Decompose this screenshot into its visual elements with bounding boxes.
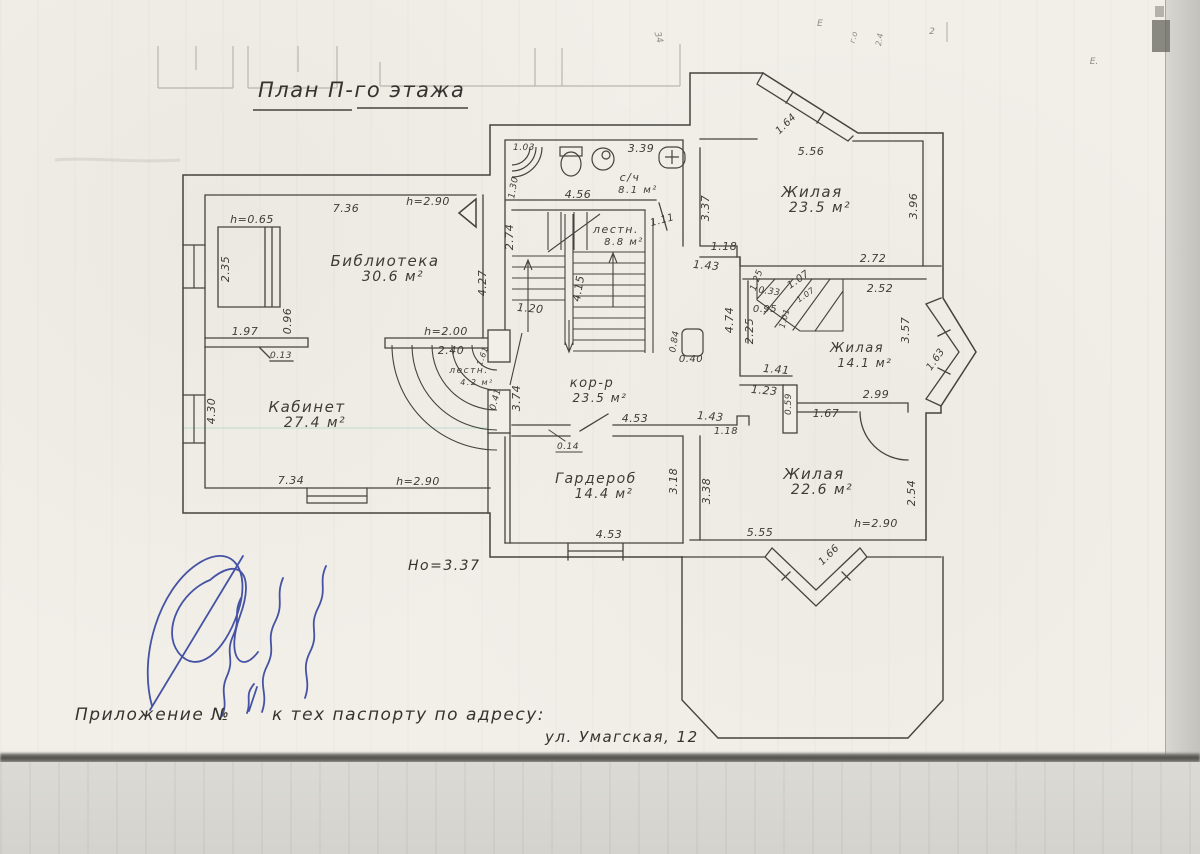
signature-ink (148, 556, 326, 716)
dim-label: 7.36 (333, 202, 360, 215)
dim-label: 5.55 (747, 526, 774, 539)
dim-label: h=2.90 (406, 195, 450, 208)
dim-label: 1.23 (751, 383, 779, 398)
dim-label: h=0.65 (230, 213, 274, 226)
dim-label: h=2.90 (854, 517, 898, 530)
bleed-text-layer: 34Ег.о2.42Е. (652, 19, 1099, 67)
caption-address: ул. Умагская, 12 (544, 728, 699, 746)
dim-label: 3.74 (510, 385, 523, 412)
dim-label: 3.37 (699, 195, 712, 222)
bleed-text: г.о (848, 30, 860, 44)
bay-window-top (757, 73, 923, 266)
dim-label: 1.03 (513, 143, 535, 153)
dim-label: 0.40 (679, 354, 703, 365)
pillar-upper (488, 330, 510, 362)
dim-label: 0.13 (270, 351, 292, 361)
dim-label: 4.27 (476, 270, 489, 297)
dim-label: 2.52 (867, 282, 894, 295)
room-area-label: 23.5 м² (573, 391, 628, 405)
dim-label: 2.54 (905, 480, 918, 507)
page-title: План П-го этажа (258, 78, 465, 102)
bottom-wall-bands (505, 540, 941, 606)
room-label: Жилая (829, 341, 884, 356)
dim-label: 0.33 (758, 286, 781, 299)
room-area-label: 8.8 м² (604, 237, 644, 248)
dim-label: 3.18 (667, 468, 680, 495)
dim-label: 1.18 (714, 426, 738, 437)
sink-icon (592, 148, 614, 170)
dim-label: 4.53 (622, 412, 649, 425)
door-triangle (459, 199, 476, 227)
dim-label: h=2.90 (396, 475, 440, 488)
dim-label: 1.20 (517, 301, 545, 316)
terrace-outline (682, 557, 943, 738)
scan-bleed-marks (55, 22, 947, 161)
dim-label: 4.30 (205, 398, 218, 425)
dim-label: 2.74 (503, 224, 516, 251)
dim-label: 3.57 (899, 317, 912, 344)
dim-label: 1.66 (817, 543, 842, 568)
dim-label: 0.95 (753, 304, 777, 315)
dim-label: 3.96 (907, 193, 920, 220)
drawing-title-block: План П-го этажа (253, 78, 468, 110)
scan-smudges (183, 6, 1170, 428)
dim-label: 2.99 (863, 388, 890, 401)
stair-left-flight (512, 256, 565, 300)
height-note: Но=3.37 (408, 558, 481, 574)
bleed-text: 34 (652, 31, 665, 45)
room-area-label: 30.6 м² (362, 269, 424, 285)
dim-label: 4.74 (723, 307, 736, 334)
dim-label: 1.64 (774, 112, 799, 137)
dim-label: 1.18 (711, 240, 738, 253)
dim-label: 1.43 (697, 409, 725, 424)
dim-label: 1.97 (232, 325, 259, 338)
room-label: Гардероб (555, 471, 637, 487)
dim-label: 2.35 (219, 256, 232, 283)
dim-label: 2.40 (438, 344, 465, 357)
dim-label: 3.39 (628, 142, 655, 155)
caption-prefix: Приложение № (75, 705, 230, 725)
room-label: лестн. (592, 223, 639, 236)
dim-label: 1.30 (507, 176, 521, 199)
signature-flourish (148, 556, 243, 706)
room-area-label: 27.4 м² (284, 415, 346, 431)
title-underline (253, 108, 468, 110)
room-area-label: 22.6 м² (791, 482, 853, 498)
room-label: кор-р (570, 376, 615, 391)
dim-label: 7.34 (278, 474, 305, 487)
bleed-text: 2.4 (874, 33, 885, 47)
room-area-label: 23.5 м² (789, 200, 851, 216)
room-area-label: 14.4 м² (575, 487, 634, 502)
dim-label: 4.53 (596, 528, 623, 541)
blue-number-mark (247, 684, 257, 713)
dim-label: 1.11 (649, 212, 675, 229)
bleed-text: Е (817, 19, 823, 29)
dim-label: 1.01 (778, 308, 792, 329)
room-area-label: 14.1 м² (838, 356, 893, 370)
dim-label: 1.43 (693, 258, 721, 273)
room-label: Жилая (782, 465, 844, 483)
dim-label: 2.25 (743, 318, 756, 345)
room-label: Кабинет (268, 398, 345, 416)
dim-label: 0.59 (784, 393, 794, 415)
dim-label: 4.56 (565, 188, 592, 201)
floor-plan-drawing: План П-го этажа (0, 0, 1200, 854)
dim-label: h=2.00 (424, 325, 468, 338)
caption-block: Приложение № к тех паспорту по адресу: у… (75, 705, 699, 746)
caption-suffix: к тех паспорту по адресу: (272, 705, 545, 725)
dim-label: 1.41 (763, 362, 791, 377)
room-area-label: 4.2 м² (460, 378, 494, 387)
room-area-label: 8.1 м² (618, 185, 658, 196)
stair-right-flight (573, 252, 645, 351)
dim-label: 0.84 (668, 330, 682, 353)
inner-wall-left-block (205, 195, 490, 488)
dim-label: 1.67 (813, 407, 840, 420)
room-label: Жилая (780, 183, 842, 201)
dim-label: 1.63 (924, 346, 947, 372)
dim-label: 2.72 (860, 252, 887, 265)
window-symbols (183, 245, 367, 503)
partition-library-office (205, 338, 308, 361)
bleed-text: Е. (1090, 57, 1099, 67)
dim-label: 3.38 (700, 478, 713, 505)
dim-label: 0.96 (281, 308, 294, 335)
handwriting-squiggle (305, 566, 326, 698)
room-label: Библиотека (330, 252, 439, 270)
dim-label: 0.14 (557, 442, 579, 452)
scanned-floorplan-page: { "page": { "title": "План П-го этажа", … (0, 0, 1200, 854)
divider-rooms-right (737, 257, 941, 279)
vent-shaft-icon (682, 329, 703, 356)
dim-label: 5.56 (798, 145, 825, 158)
bleed-text: 2 (929, 27, 935, 37)
room-label: с/ч (620, 171, 641, 184)
